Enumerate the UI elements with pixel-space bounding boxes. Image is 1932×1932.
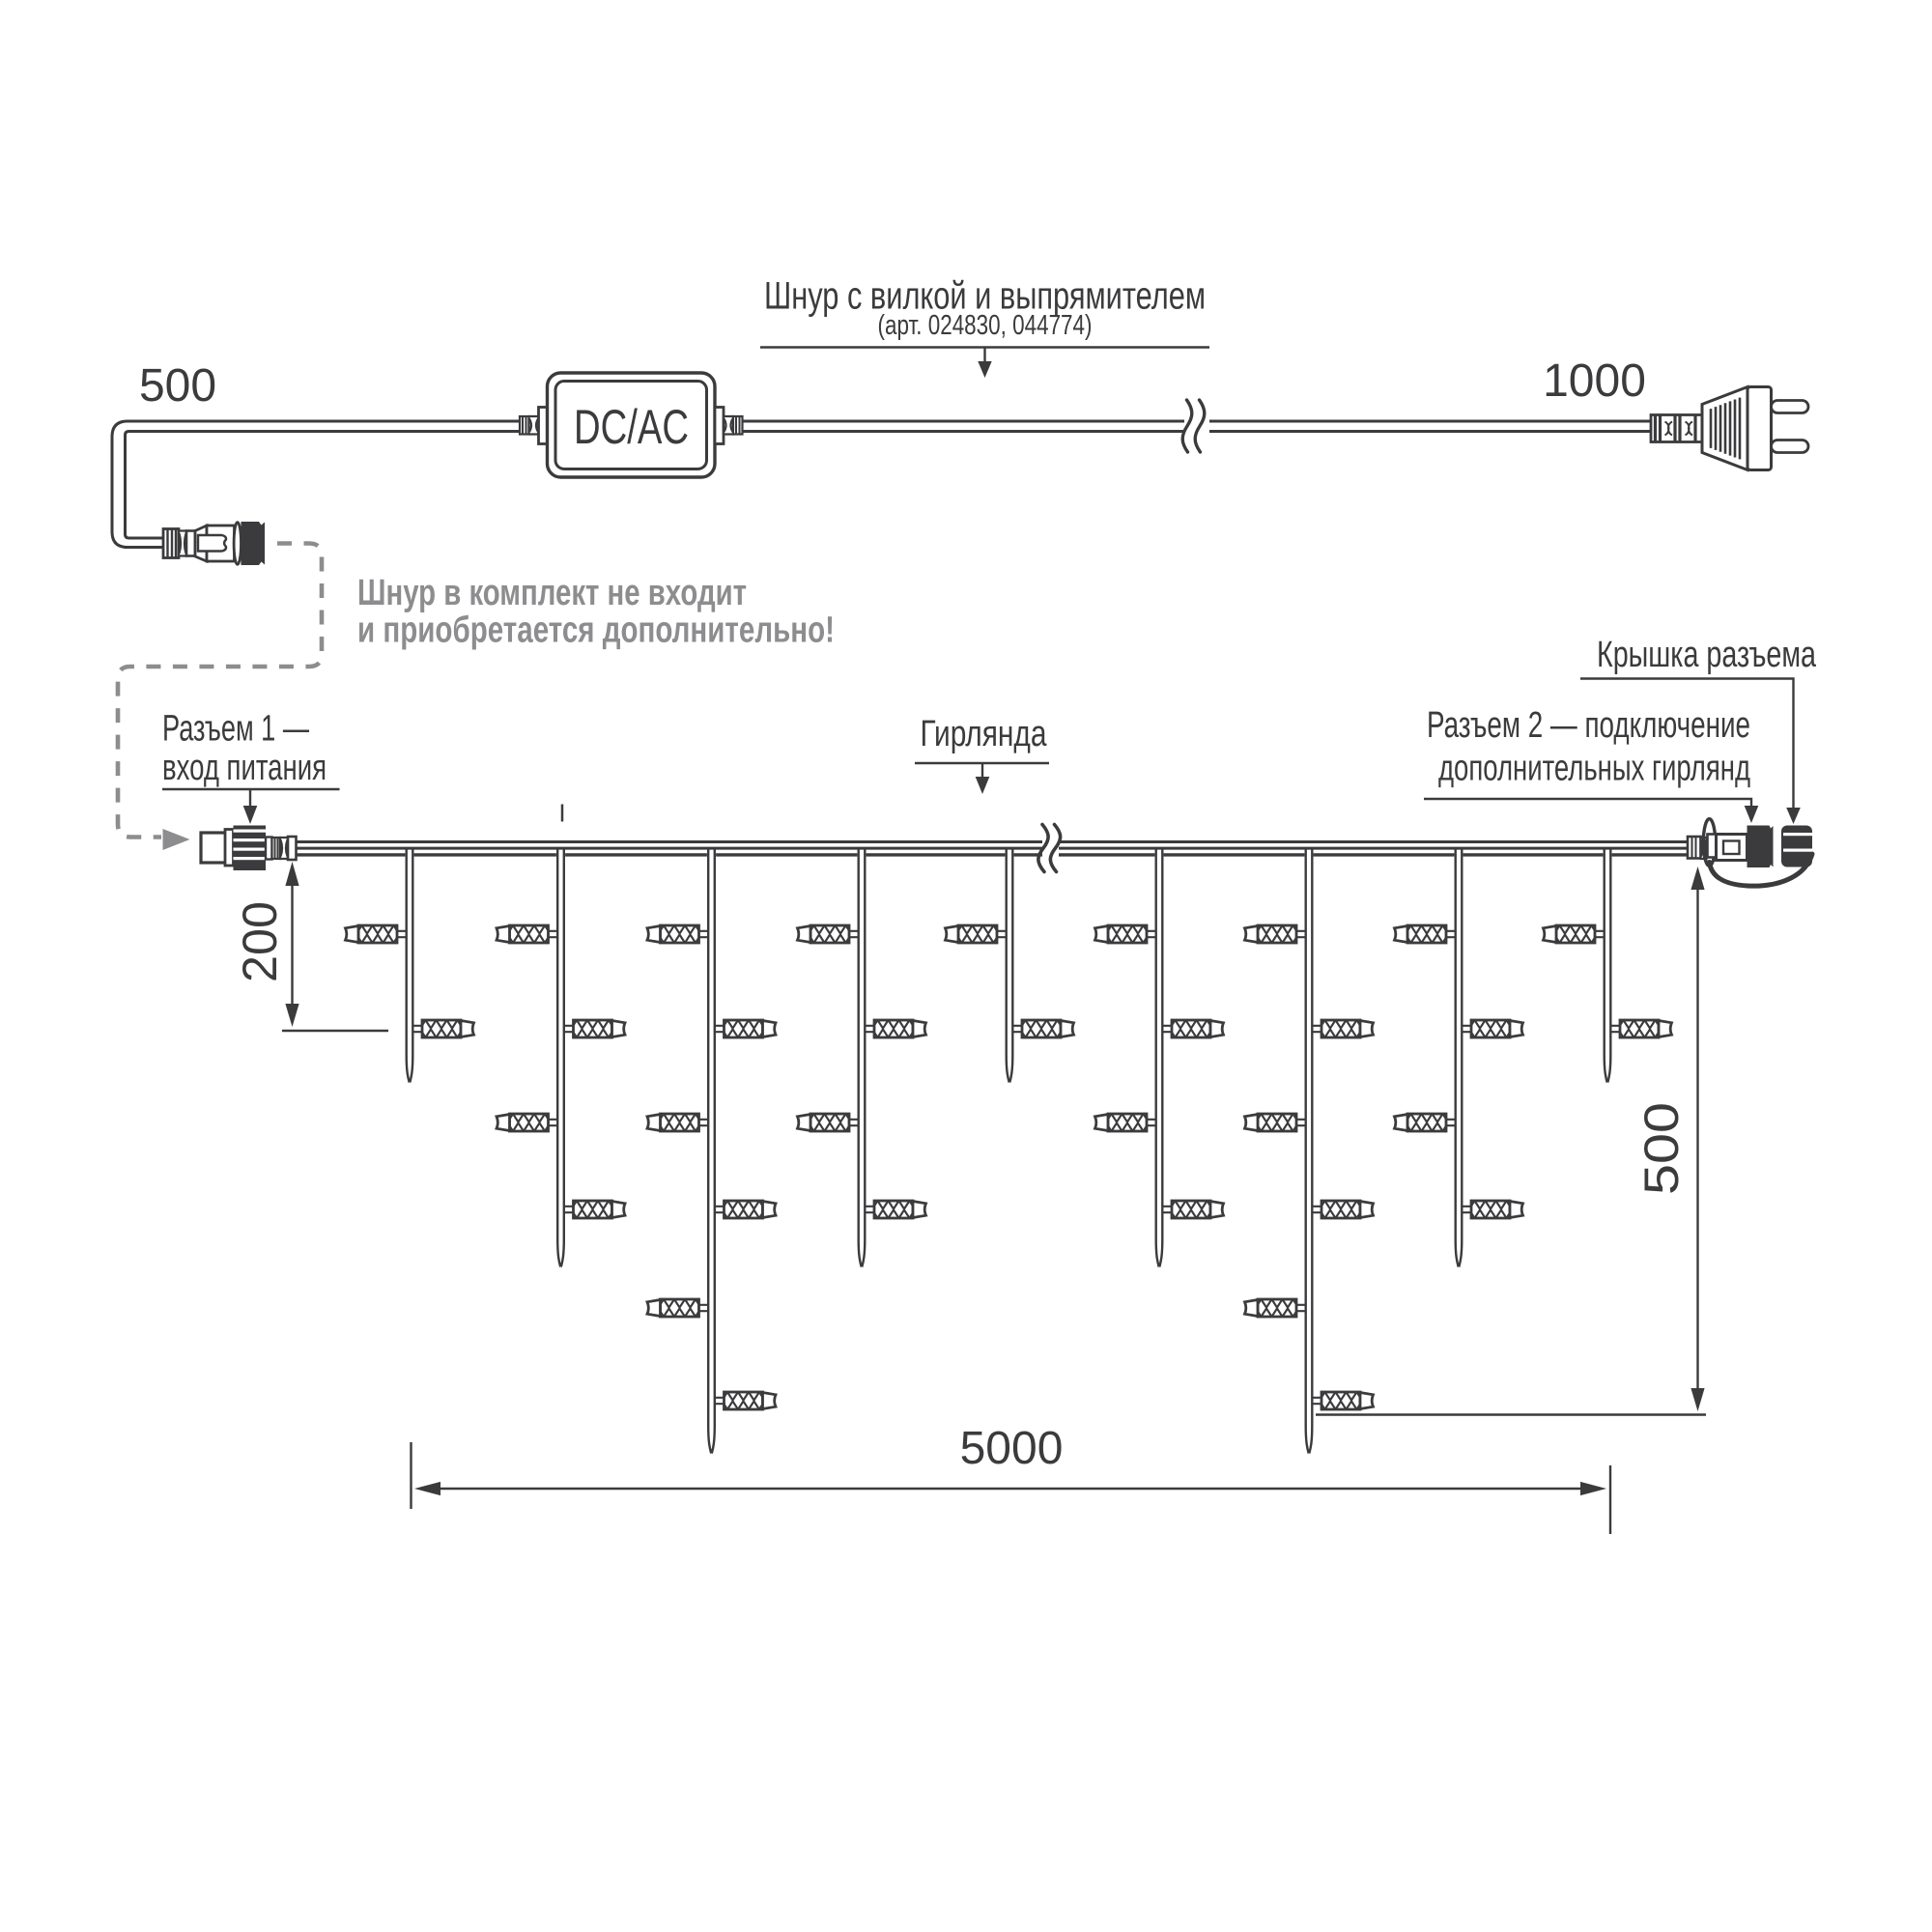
svg-text:дополнительных гирлянд: дополнительных гирлянд [1438,749,1750,789]
svg-text:(арт. 024830, 044774): (арт. 024830, 044774) [878,310,1093,341]
svg-text:1000: 1000 [1543,355,1646,407]
svg-text:Разъем 1 —: Разъем 1 — [162,709,309,750]
svg-text:Шнур в комплект не входит: Шнур в комплект не входит [357,573,747,613]
svg-text:500: 500 [139,360,216,412]
svg-text:DC/AC: DC/AC [574,400,689,454]
svg-text:Гирлянда: Гирлянда [921,714,1048,754]
svg-text:200: 200 [233,901,287,982]
svg-text:и приобретается дополнительно!: и приобретается дополнительно! [357,611,835,651]
svg-text:5000: 5000 [960,1423,1064,1474]
svg-text:вход питания: вход питания [162,748,327,788]
svg-text:500: 500 [1634,1102,1689,1195]
svg-text:Разъем 2 — подключение: Разъем 2 — подключение [1427,705,1750,746]
svg-text:Крышка разъема: Крышка разъема [1597,635,1817,675]
